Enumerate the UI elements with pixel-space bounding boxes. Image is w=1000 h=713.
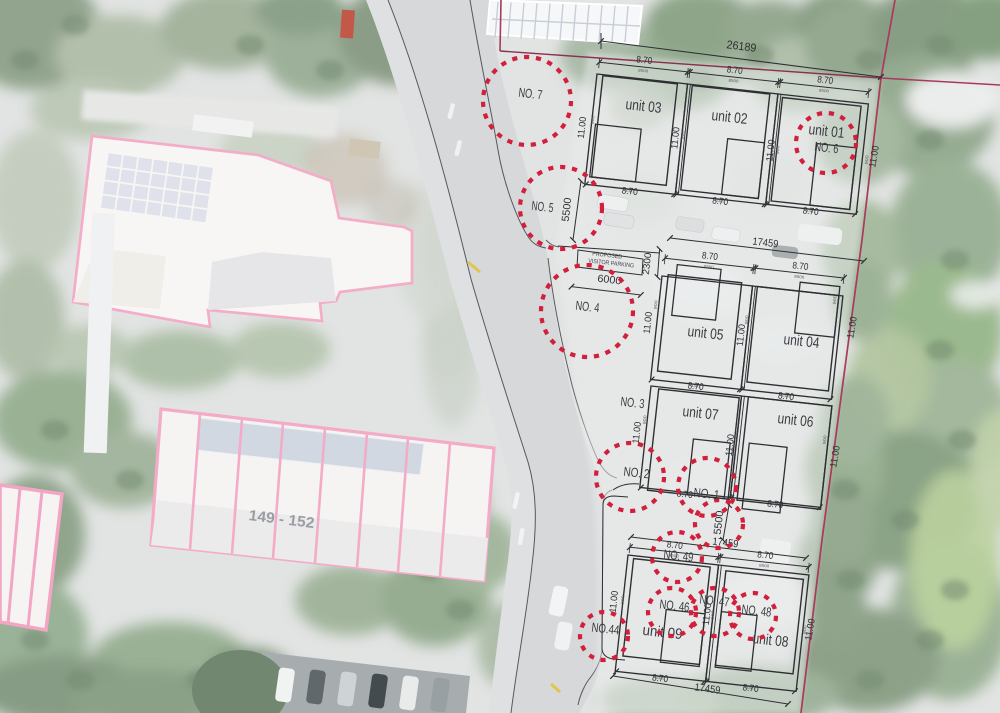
svg-text:NO. 4: NO. 4 bbox=[575, 298, 601, 316]
svg-text:NO. 6: NO. 6 bbox=[814, 139, 840, 157]
svg-text:8.70: 8.70 bbox=[701, 250, 718, 263]
svg-text:NO. 1: NO. 1 bbox=[693, 485, 720, 503]
svg-text:NO. 7: NO. 7 bbox=[518, 85, 544, 103]
svg-text:NO. 3: NO. 3 bbox=[620, 394, 646, 412]
svg-text:8.70: 8.70 bbox=[757, 549, 774, 562]
svg-text:8.70: 8.70 bbox=[792, 260, 809, 273]
svg-text:8.70: 8.70 bbox=[636, 54, 653, 67]
svg-text:8.70: 8.70 bbox=[817, 74, 834, 87]
svg-text:8.70: 8.70 bbox=[726, 64, 743, 77]
svg-text:NO.44: NO.44 bbox=[591, 620, 620, 638]
svg-text:NO. 2: NO. 2 bbox=[623, 464, 650, 482]
svg-text:NO. 5: NO. 5 bbox=[531, 198, 555, 215]
